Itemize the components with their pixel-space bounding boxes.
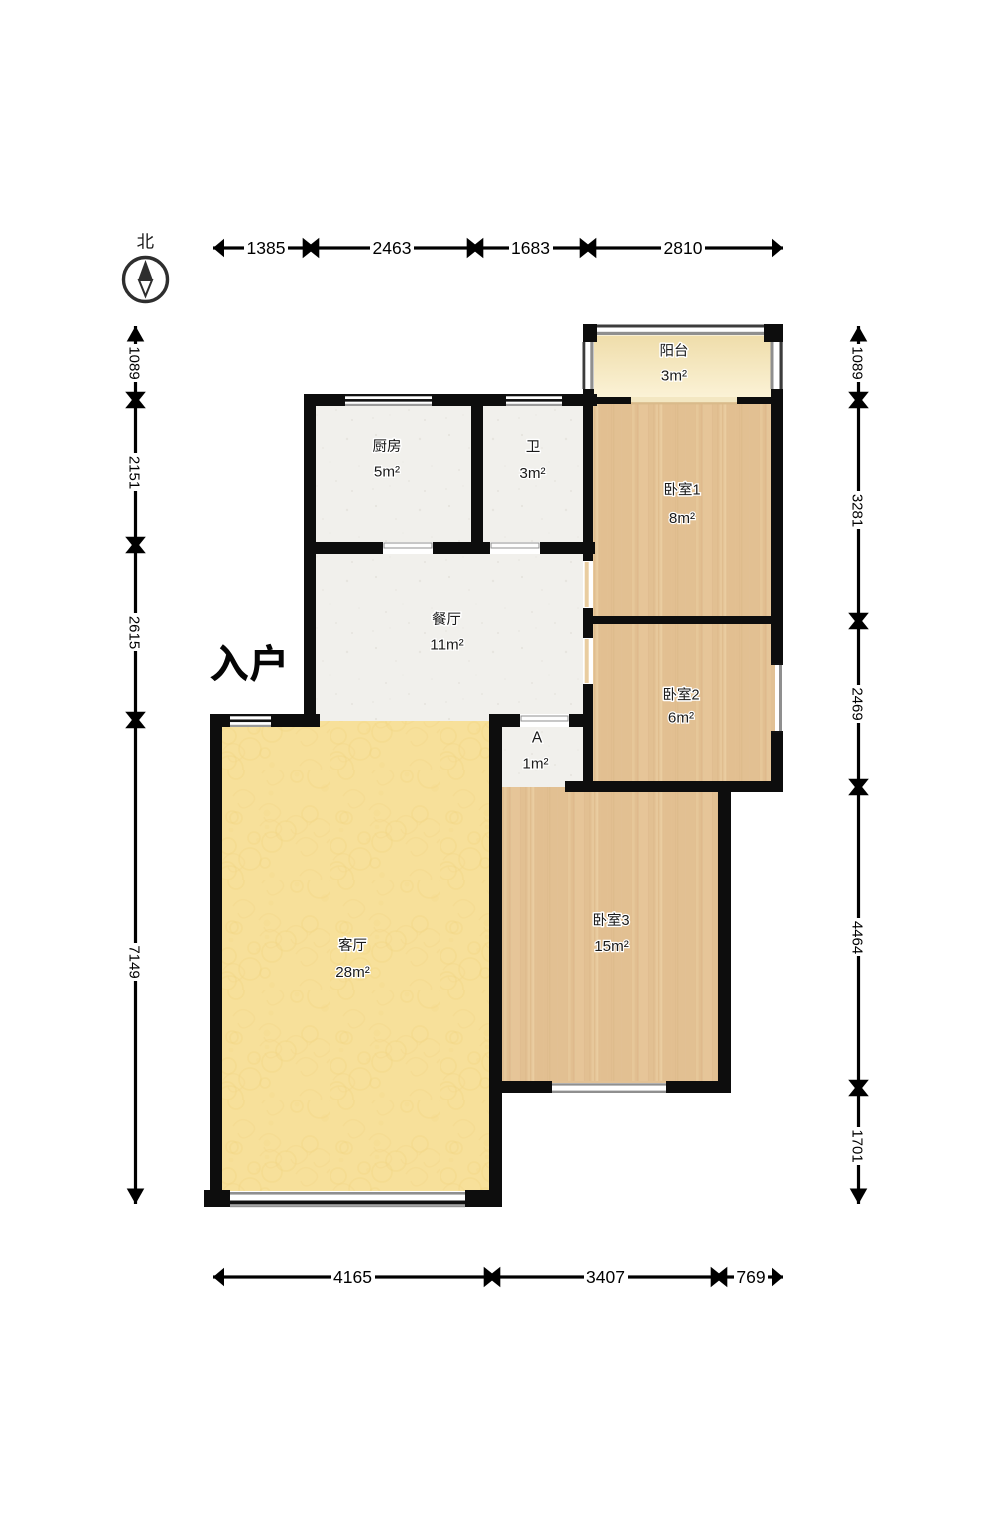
- svg-text:28m²: 28m²: [335, 964, 370, 981]
- svg-text:11m²: 11m²: [430, 637, 463, 654]
- svg-text:2615: 2615: [125, 616, 142, 649]
- svg-text:8m²: 8m²: [669, 510, 695, 527]
- svg-text:5m²: 5m²: [374, 464, 400, 481]
- svg-text:3: 3: [622, 913, 630, 929]
- svg-text:4165: 4165: [333, 1267, 372, 1287]
- svg-text:769: 769: [736, 1267, 765, 1287]
- svg-text:1385: 1385: [247, 238, 286, 258]
- svg-text:2463: 2463: [373, 238, 412, 258]
- svg-text:3281: 3281: [848, 494, 865, 527]
- svg-text:7149: 7149: [125, 945, 142, 978]
- svg-text:1m²: 1m²: [522, 756, 548, 773]
- svg-text:3m²: 3m²: [519, 465, 545, 482]
- svg-text:A: A: [532, 730, 543, 747]
- svg-text:4464: 4464: [848, 921, 865, 954]
- svg-text:1: 1: [693, 482, 701, 498]
- svg-text:1701: 1701: [848, 1129, 865, 1162]
- svg-text:1683: 1683: [511, 238, 550, 258]
- svg-text:3407: 3407: [586, 1267, 625, 1287]
- svg-text:1089: 1089: [125, 346, 142, 379]
- svg-text:2810: 2810: [664, 238, 703, 258]
- svg-text:6m²: 6m²: [668, 710, 694, 727]
- svg-text:1089: 1089: [848, 346, 865, 379]
- svg-text:3m²: 3m²: [661, 368, 687, 385]
- svg-text:2151: 2151: [125, 456, 142, 489]
- svg-text:2: 2: [692, 687, 700, 703]
- svg-text:2469: 2469: [848, 687, 865, 720]
- svg-text:15m²: 15m²: [594, 938, 629, 955]
